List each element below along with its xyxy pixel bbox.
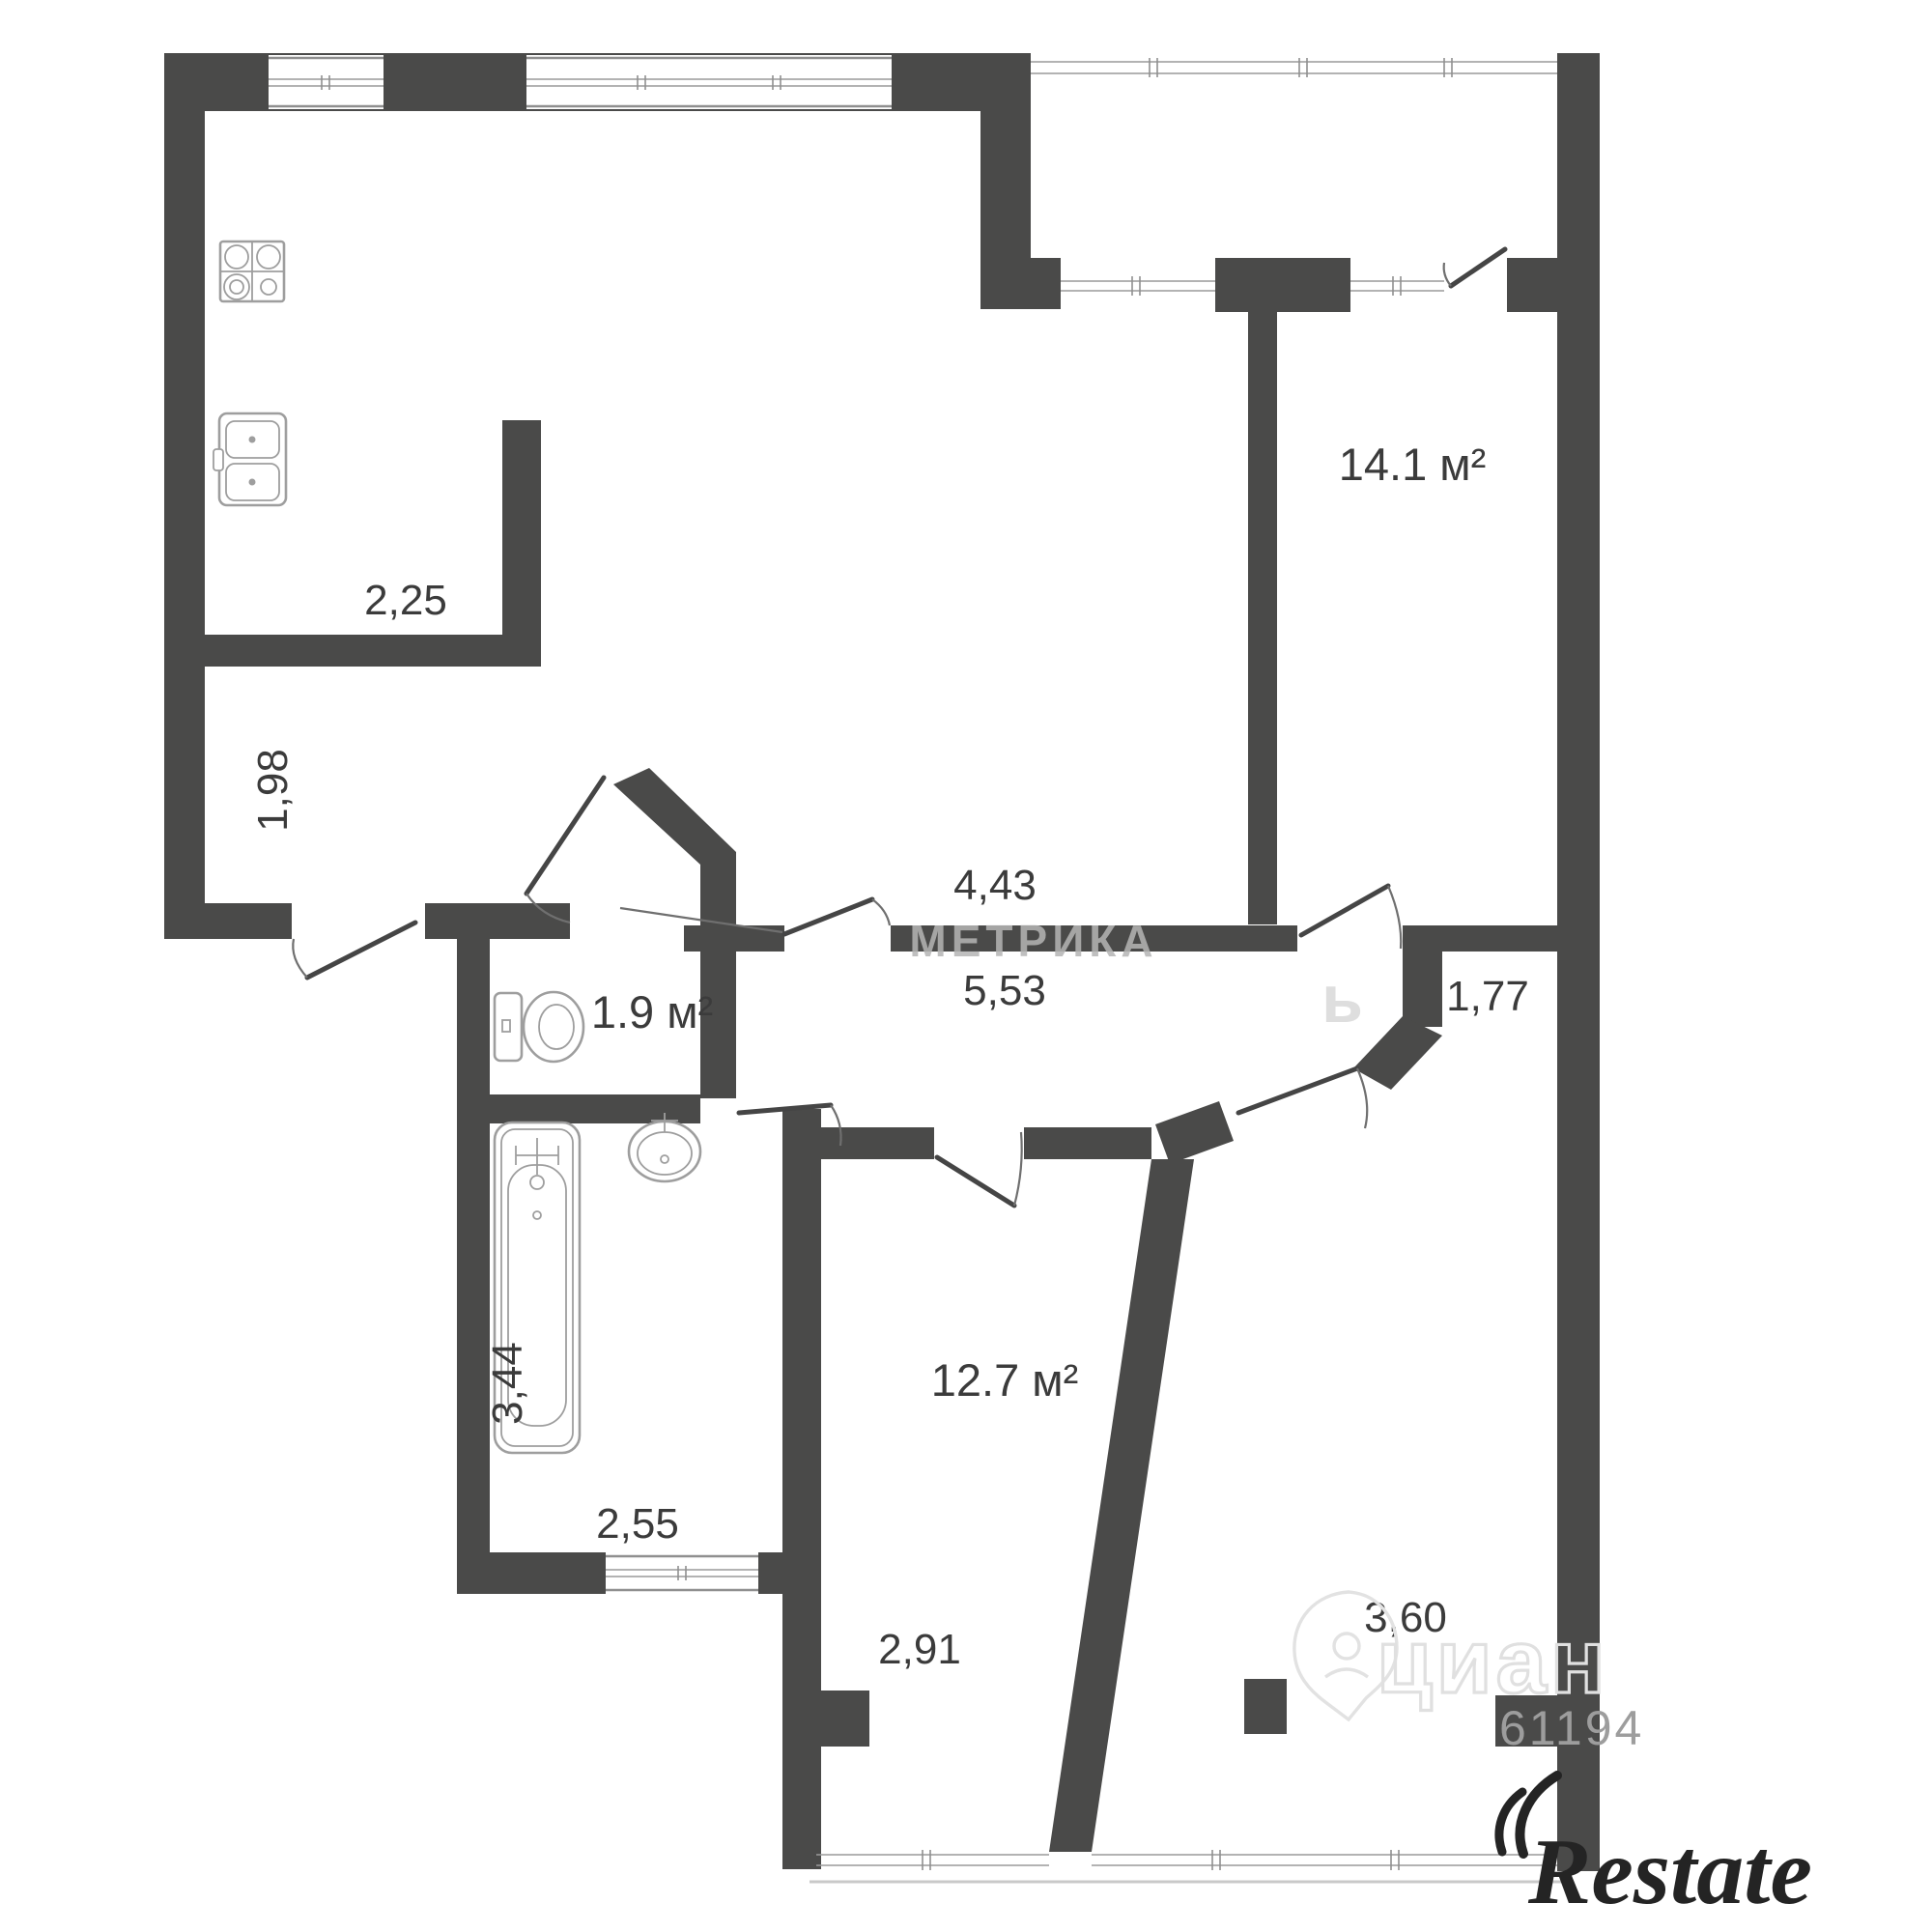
hall-south-door: [784, 899, 890, 934]
dim-bathroom-width: 2,55: [596, 1500, 679, 1548]
wall-bottom-left-b: [425, 903, 570, 939]
dim-bathroom-depth: 3,44: [484, 1342, 531, 1425]
wall-balcony-divider: [980, 53, 1031, 264]
dim-hall-width: 4,43: [953, 862, 1037, 909]
bottom-window-b: [1092, 1850, 1557, 1870]
watermark-soft-letter: ь: [1321, 961, 1363, 1037]
area-room-14-1: 14.1 м²: [1339, 439, 1487, 490]
restate-logo: Restate: [1499, 1776, 1812, 1924]
area-wc: 1.9 м²: [591, 986, 713, 1037]
wall-bath-right: [782, 1109, 821, 1869]
wall-tilted: [1049, 1159, 1194, 1852]
labels: 2,25 1,98 4,43 5,53 1,77 3,44 2,55 2,91 …: [249, 439, 1529, 1673]
wall-wc-bath-left: [457, 939, 490, 1552]
wall-hall-room1-divider: [1248, 309, 1277, 924]
wall-pier-left: [811, 1690, 869, 1747]
dim-room-12-7-width: 2,91: [878, 1626, 961, 1673]
stove-icon: [220, 241, 284, 301]
wall-kitchen-divider: [205, 635, 541, 667]
wall-balcony-divider-foot: [980, 258, 1061, 309]
hall-balcony-window: [1061, 276, 1215, 296]
room-14-1-door: [1301, 886, 1401, 949]
wall-kitchen-stub: [502, 420, 541, 644]
room-12-7-door: [937, 1132, 1022, 1206]
wall-pillar: [1155, 1101, 1234, 1164]
wall-bath-bottom-a: [457, 1552, 606, 1594]
wall-room3-top-b: [1024, 1127, 1151, 1159]
wall-balcony-door-corner: [1507, 258, 1557, 312]
toilet-icon: [495, 992, 583, 1062]
wall-room3-top-a: [821, 1127, 934, 1159]
dim-kitchen-depth: 1,98: [249, 749, 297, 832]
wall-bottom-left-a: [164, 903, 292, 939]
bottom-window-a: [816, 1850, 1049, 1870]
room1-balcony-window: [1350, 276, 1444, 296]
balcony-glazing: [1031, 58, 1557, 77]
watermark-digits: 61194: [1499, 1701, 1644, 1755]
area-room-12-7: 12.7 м²: [931, 1354, 1079, 1406]
kitchen-sink-icon: [213, 413, 286, 505]
bathroom-window: [606, 1552, 758, 1594]
wall-nook-diagonal: [1353, 1016, 1442, 1090]
room-3-60-door: [1238, 1068, 1367, 1128]
kitchen-window-2: [526, 55, 892, 109]
dim-kitchen-width: 2,25: [364, 577, 447, 624]
dim-hall-length: 5,53: [963, 967, 1046, 1014]
dim-corridor-depth: 1,77: [1446, 973, 1529, 1020]
watermark-cian: циан: [1377, 1610, 1609, 1712]
wall-room1-top-block: [1215, 258, 1350, 312]
wall-pier-right: [1244, 1679, 1287, 1734]
floor-plan-drawing: 2,25 1,98 4,43 5,53 1,77 3,44 2,55 2,91 …: [0, 0, 1932, 1932]
entrance-door: [293, 923, 415, 978]
wall-nook: [1403, 952, 1442, 1027]
kitchen-window-1: [269, 55, 384, 109]
balcony-door: [1444, 249, 1505, 286]
watermark-metrika: МЕТРИКА: [909, 916, 1157, 966]
wall-right: [1557, 53, 1600, 1871]
watermark-restate: Restate: [1527, 1820, 1812, 1924]
floor-plan-canvas: 2,25 1,98 4,43 5,53 1,77 3,44 2,55 2,91 …: [0, 0, 1932, 1932]
wall-left: [164, 53, 205, 939]
